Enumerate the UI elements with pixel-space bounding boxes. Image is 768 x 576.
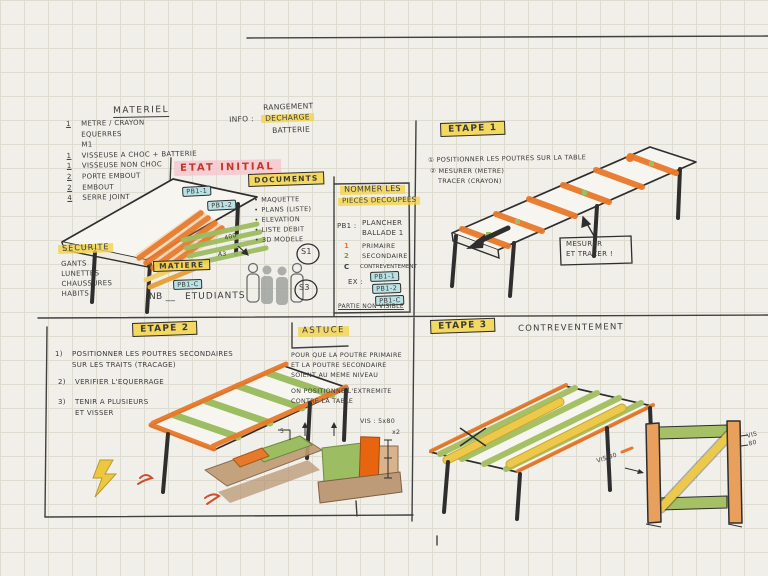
etape1-line2: ② MESURER (METRE) [430,168,504,175]
astuce-title: ASTUCE [298,326,349,336]
nommer-row-k2: 2 [344,253,349,261]
info-line3: BATTERIE [272,126,310,136]
astuce-vis-label: VIS : 5x80 [360,418,395,425]
nommer-row-v1: PRIMAIRE [362,243,395,250]
documents-item: PLANS (LISTE) [254,204,311,215]
etape2-step3-l2: ET VISSER [75,410,114,418]
astuce-body-4: ON POSITIONNE L'EXTREMITE [291,388,392,395]
etape2-title: ETAPE 2 [132,321,198,337]
astuce-body-2: ET LA POUTRE SECONDAIRE [291,362,387,369]
etape2-step2-l1: VERIFIER L'EQUERRAGE [75,379,164,387]
tag-pb1-2: PB1-2 [207,199,236,211]
matiere-title: MATIERE [153,259,210,272]
etape2-step1-num: 1) [55,351,63,359]
tag-pb1-c: PB1-C [173,279,203,290]
nommer-key-l2: BALLADE 1 [362,230,404,238]
nommer-title-2: PIECES DECOUPEES [338,197,420,206]
etape1-note-2: ET TRACER ! [566,251,613,259]
securite-list: GANTS LUNETTES CHAUSSURES HABITS [61,258,113,299]
info-line1: RANGEMENT [263,102,314,112]
materiel-title: MATERIEL [113,105,169,118]
students-silhouettes [247,264,303,306]
tag-pb1-1: PB1-1 [182,185,211,197]
securite-item: CHAUSSURES [61,278,112,289]
nommer-footer: PARTIE NON VISIBLE [338,304,404,311]
sketch-canvas: MATERIEL 1METRE / CRAYON EQUERRES M1 1VI… [0,0,768,576]
mark-a3: A3 [218,252,227,259]
nommer-row-v3: CONTREVENTEMENT [360,264,417,270]
astuce-vis-qty: x2 [392,429,400,436]
etudiants-label: ETUDIANTS [185,291,246,302]
etape2-step1-l1: POSITIONNER LES POUTRES SECONDAIRES [72,351,233,359]
etape2-step1-l2: SUR LES TRAITS (TRACAGE) [72,362,176,370]
documents-item: 3D MODELE [255,234,312,245]
etape1-line3: TRACER (CRAYON) [438,178,502,185]
nommer-key: PB1 : [337,223,357,231]
etape2-step3-l1: TENIR A PLUSIEURS [75,399,148,407]
nb-label: NB __ [149,292,175,302]
etape2-step2-num: 2) [58,379,66,387]
astuce-dim-5: 5 [280,429,284,436]
frame-detail-sketch [646,421,748,527]
nommer-row-v2: SECONDAIRE [362,253,408,260]
securite-item: HABITS [62,288,113,299]
etape2-step3-num: 3) [58,399,66,407]
materiel-item: 4SERRE JOINT [67,191,197,204]
astuce-body-3: SOIENT AU MEME NIVEAU [291,372,378,379]
etape3-subtitle: CONTREVENTEMENT [518,323,624,334]
lightning-icon [93,460,116,497]
nommer-ex-label: EX : [348,279,363,287]
tag-ex-1: PB1-1 [370,271,399,282]
documents-list: MAQUETTE PLANS (LISTE) ELEVATION LISTE D… [254,194,312,245]
mark-s3: S3 [299,284,310,293]
nommer-row-k1: 1 [344,243,349,251]
astuce-illustration [278,422,402,503]
documents-title: DOCUMENTS [248,171,325,187]
mark-s1: S1 [301,248,312,257]
nommer-title-1: NOMMER LES [340,185,405,195]
astuce-body-5: CONTRE LA TABLE [291,398,353,405]
etape1-title: ETAPE 1 [440,121,506,137]
nommer-key-l1: PLANCHER [362,220,402,228]
info-label: INFO : [229,115,254,124]
etape3-table-sketch [430,385,653,519]
tag-ex-2: PB1-2 [372,283,401,294]
nommer-row-k3: C [344,264,349,272]
etape3-title: ETAPE 3 [430,318,496,334]
astuce-body-1: POUR QUE LA POUTRE PRIMAIRE [291,352,402,359]
etape1-note-1: MESURER [566,241,602,249]
